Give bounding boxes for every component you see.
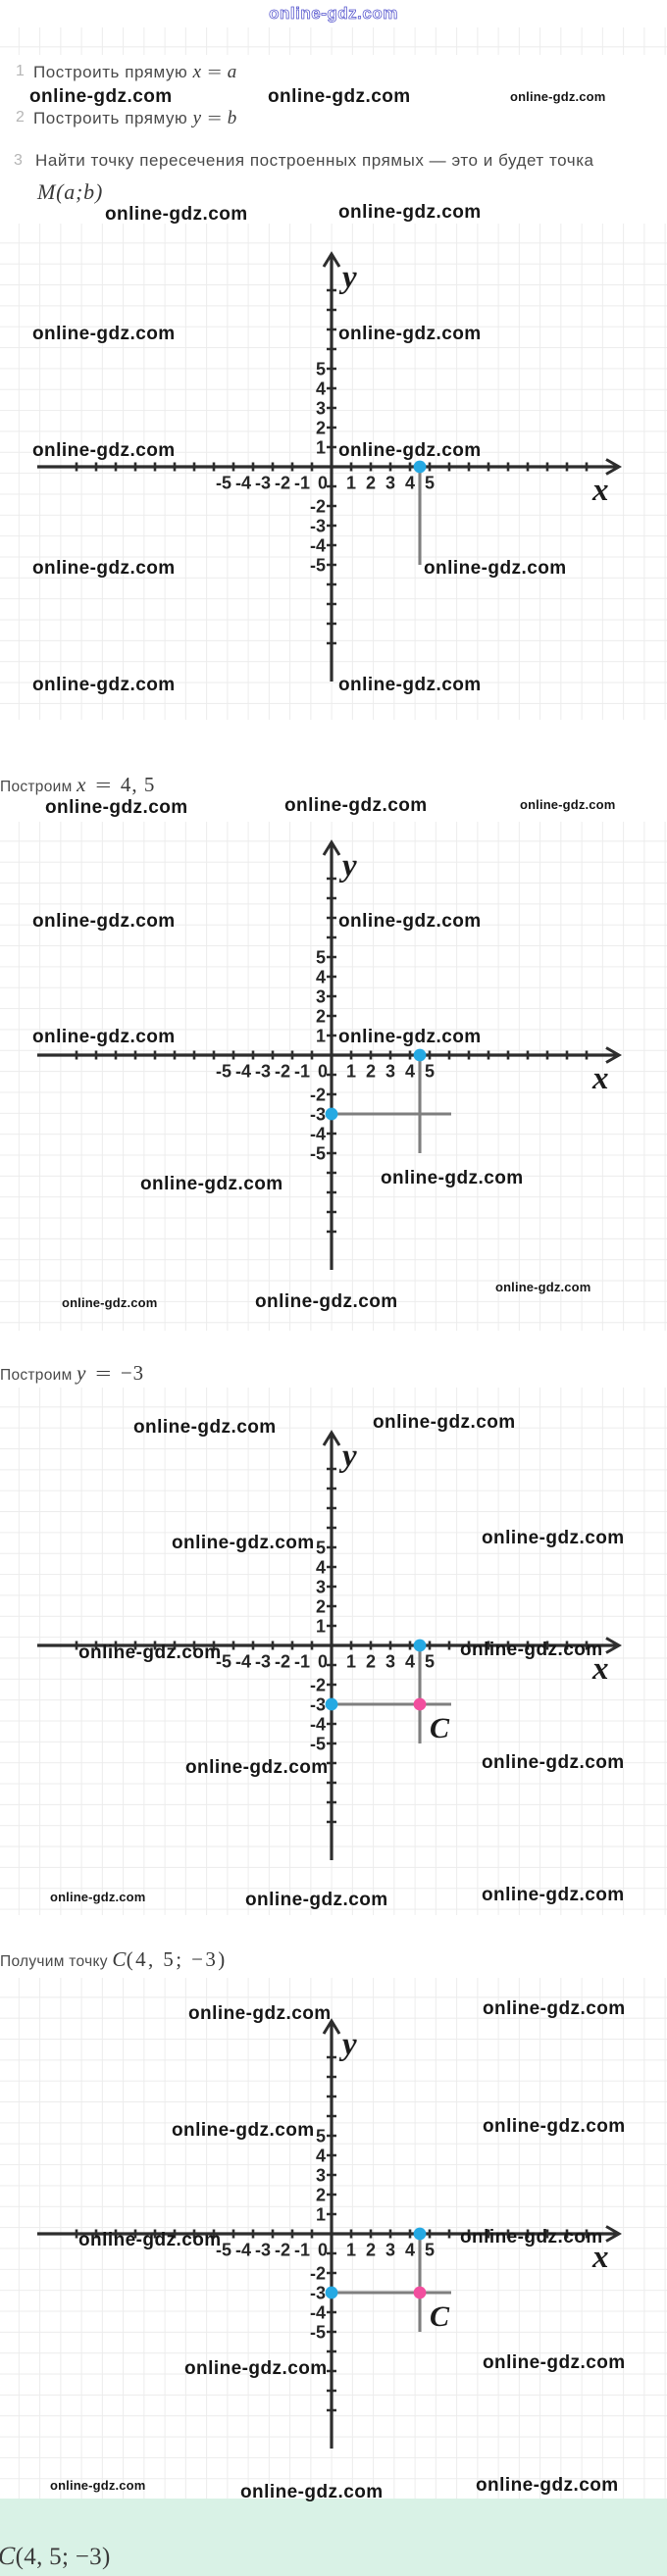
svg-text:4: 4	[316, 1558, 326, 1578]
svg-text:-5: -5	[310, 1144, 326, 1164]
svg-text:C: C	[430, 1712, 450, 1744]
svg-text:5: 5	[316, 948, 326, 968]
svg-text:-5: -5	[216, 474, 231, 493]
svg-text:-3: -3	[255, 474, 271, 493]
svg-text:x: x	[591, 473, 609, 508]
svg-text:4: 4	[316, 2147, 326, 2166]
svg-text:-3: -3	[255, 1062, 271, 1082]
svg-text:1: 1	[346, 2241, 356, 2260]
svg-text:4: 4	[405, 1652, 415, 1672]
svg-text:-4: -4	[235, 1062, 251, 1082]
svg-text:1: 1	[346, 1062, 356, 1082]
svg-text:1: 1	[346, 474, 356, 493]
svg-text:4: 4	[316, 968, 326, 987]
svg-text:-4: -4	[235, 2241, 251, 2260]
svg-text:4: 4	[405, 1062, 415, 1082]
svg-text:y: y	[338, 1439, 357, 1474]
svg-text:-3: -3	[310, 1695, 326, 1715]
svg-text:4: 4	[405, 2241, 415, 2260]
svg-text:3: 3	[385, 474, 395, 493]
svg-text:2: 2	[366, 1652, 376, 1672]
svg-text:2: 2	[366, 1062, 376, 1082]
svg-text:5: 5	[316, 2127, 326, 2147]
svg-text:2: 2	[366, 474, 376, 493]
svg-text:-4: -4	[310, 1715, 326, 1735]
svg-text:-2: -2	[275, 1062, 290, 1082]
svg-text:-2: -2	[310, 497, 326, 517]
svg-text:-4: -4	[310, 2303, 326, 2323]
svg-text:3: 3	[385, 1062, 395, 1082]
svg-text:3: 3	[316, 1578, 326, 1597]
svg-text:-2: -2	[310, 1676, 326, 1695]
svg-text:0: 0	[318, 1652, 328, 1672]
svg-text:-5: -5	[310, 2323, 326, 2343]
svg-text:2: 2	[316, 419, 326, 438]
svg-text:1: 1	[316, 1617, 326, 1637]
svg-text:-5: -5	[310, 1735, 326, 1754]
svg-text:-4: -4	[235, 474, 251, 493]
svg-text:5: 5	[425, 474, 435, 493]
svg-text:4: 4	[316, 379, 326, 399]
svg-text:0: 0	[318, 1062, 328, 1082]
svg-text:1: 1	[316, 1027, 326, 1046]
svg-text:3: 3	[316, 2166, 326, 2186]
svg-text:1: 1	[316, 2205, 326, 2225]
svg-text:-2: -2	[275, 1652, 290, 1672]
svg-text:-3: -3	[310, 1105, 326, 1125]
svg-text:5: 5	[425, 1062, 435, 1082]
svg-text:-3: -3	[255, 1652, 271, 1672]
svg-text:5: 5	[316, 1539, 326, 1558]
svg-text:2: 2	[316, 1597, 326, 1617]
svg-text:2: 2	[316, 1007, 326, 1027]
svg-text:y: y	[338, 2027, 357, 2062]
svg-text:1: 1	[316, 438, 326, 458]
svg-text:3: 3	[316, 399, 326, 419]
svg-text:2: 2	[366, 2241, 376, 2260]
svg-text:y: y	[338, 260, 357, 295]
svg-text:y: y	[338, 848, 357, 884]
svg-text:3: 3	[316, 987, 326, 1007]
svg-text:3: 3	[385, 2241, 395, 2260]
svg-text:-2: -2	[275, 474, 290, 493]
svg-text:-2: -2	[310, 1086, 326, 1105]
svg-text:1: 1	[346, 1652, 356, 1672]
svg-text:-4: -4	[310, 536, 326, 556]
svg-text:-3: -3	[310, 2284, 326, 2303]
svg-text:x: x	[591, 1061, 609, 1096]
svg-text:5: 5	[316, 360, 326, 379]
svg-text:C: C	[430, 2300, 450, 2333]
svg-text:-5: -5	[310, 556, 326, 576]
svg-text:-5: -5	[216, 1062, 231, 1082]
svg-text:-2: -2	[310, 2264, 326, 2284]
svg-text:2: 2	[316, 2186, 326, 2205]
svg-text:-2: -2	[275, 2241, 290, 2260]
svg-text:-3: -3	[310, 517, 326, 536]
svg-text:-1: -1	[294, 1652, 310, 1672]
svg-text:-1: -1	[294, 1062, 310, 1082]
svg-text:-1: -1	[294, 474, 310, 493]
svg-text:-4: -4	[235, 1652, 251, 1672]
svg-text:3: 3	[385, 1652, 395, 1672]
svg-text:4: 4	[405, 474, 415, 493]
svg-text:0: 0	[318, 2241, 328, 2260]
svg-text:-1: -1	[294, 2241, 310, 2260]
svg-text:0: 0	[318, 474, 328, 493]
svg-text:5: 5	[425, 2241, 435, 2260]
svg-text:-4: -4	[310, 1125, 326, 1144]
svg-text:5: 5	[425, 1652, 435, 1672]
svg-text:-3: -3	[255, 2241, 271, 2260]
